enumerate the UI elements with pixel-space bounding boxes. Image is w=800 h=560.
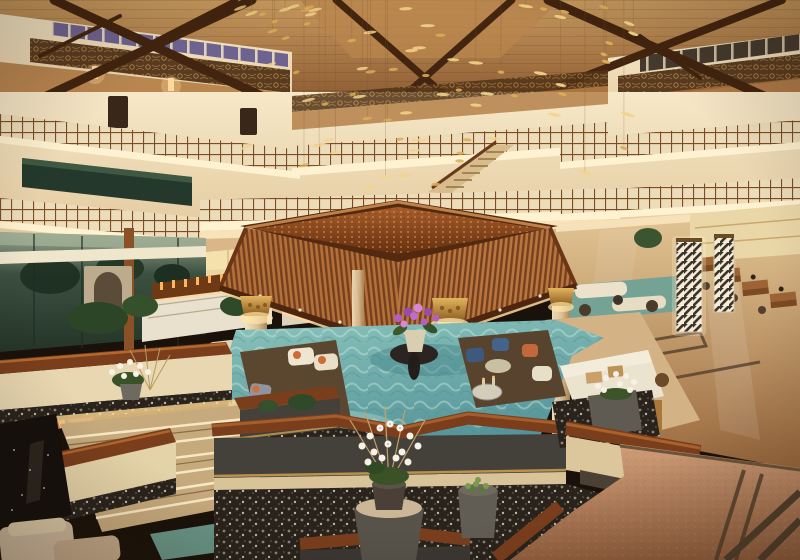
vignette-overlay <box>0 0 800 560</box>
hotel-atrium-photograph <box>0 0 800 560</box>
